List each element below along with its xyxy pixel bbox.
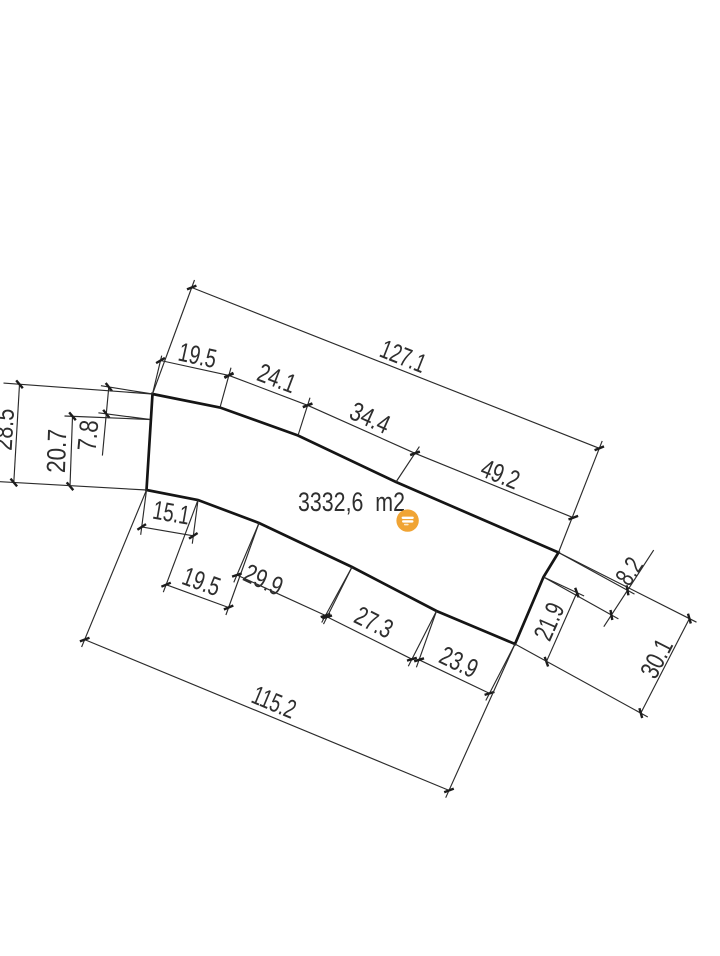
svg-text:3332,6 m2: 3332,6 m2 — [298, 487, 405, 517]
svg-text:49.2: 49.2 — [477, 453, 524, 495]
svg-text:28.5: 28.5 — [0, 408, 20, 452]
svg-text:127.1: 127.1 — [376, 334, 431, 379]
svg-text:15.1: 15.1 — [151, 495, 193, 531]
svg-text:115.2: 115.2 — [248, 680, 301, 725]
svg-text:19.5: 19.5 — [179, 561, 225, 602]
svg-text:30.1: 30.1 — [634, 634, 679, 683]
svg-text:20.7: 20.7 — [41, 429, 73, 474]
svg-text:23.9: 23.9 — [435, 640, 483, 684]
svg-text:21.9: 21.9 — [528, 598, 571, 645]
svg-text:24.1: 24.1 — [253, 357, 300, 399]
svg-text:7.8: 7.8 — [72, 419, 105, 453]
svg-text:19.5: 19.5 — [176, 337, 220, 374]
svg-text:27.3: 27.3 — [350, 600, 398, 644]
svg-text:8.2: 8.2 — [609, 552, 649, 591]
svg-text:34.4: 34.4 — [345, 396, 395, 440]
